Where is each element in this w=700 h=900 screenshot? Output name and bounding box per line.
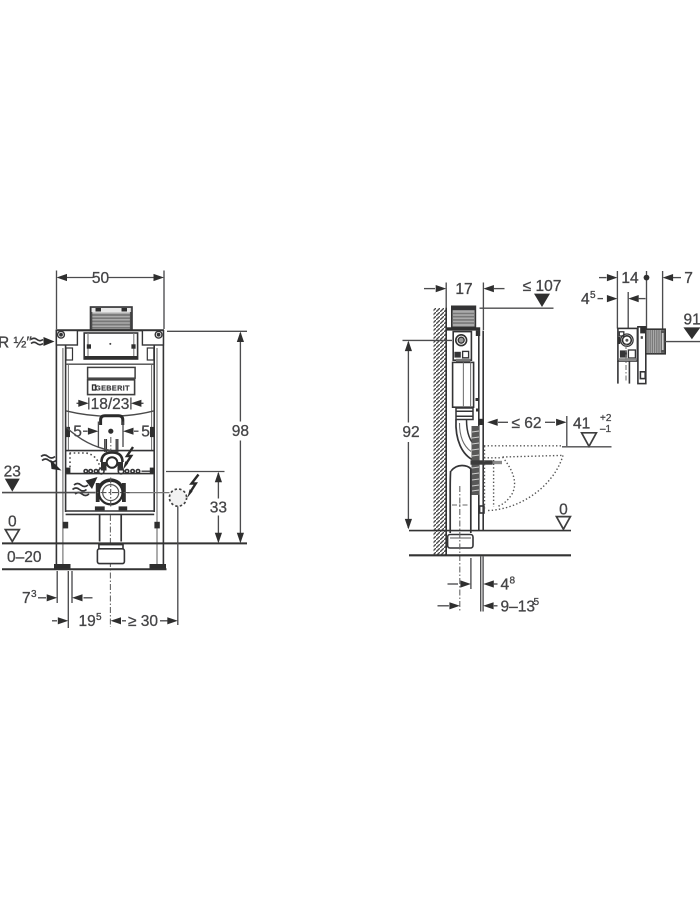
svg-text:7: 7 (22, 590, 31, 607)
svg-text:≤ 62: ≤ 62 (511, 415, 541, 432)
svg-text:GEBERIT: GEBERIT (95, 384, 130, 393)
svg-text:+2: +2 (600, 413, 612, 424)
svg-text:0: 0 (8, 514, 17, 531)
svg-text:50: 50 (92, 270, 110, 287)
svg-text:5: 5 (141, 424, 150, 441)
svg-text:≤ 107: ≤ 107 (523, 278, 562, 295)
svg-text:≥ 30: ≥ 30 (128, 613, 158, 630)
svg-text:4: 4 (501, 577, 510, 594)
svg-text:4: 4 (581, 291, 590, 308)
svg-text:19: 19 (79, 613, 96, 630)
svg-text:98: 98 (232, 423, 249, 440)
svg-text:7: 7 (684, 270, 693, 287)
svg-text:5: 5 (96, 612, 102, 623)
svg-text:33: 33 (210, 500, 227, 517)
svg-text:0–20: 0–20 (7, 549, 42, 566)
svg-text:9–13: 9–13 (501, 598, 535, 615)
svg-text:18/23: 18/23 (91, 396, 130, 413)
svg-text:91: 91 (684, 312, 700, 329)
svg-text:8: 8 (510, 576, 516, 587)
svg-text:14: 14 (621, 270, 639, 287)
svg-text:5: 5 (534, 597, 540, 608)
svg-text:5: 5 (590, 290, 596, 301)
svg-text:–1: –1 (600, 424, 612, 435)
svg-text:23: 23 (4, 464, 21, 481)
svg-text:92: 92 (402, 424, 419, 441)
svg-text:3: 3 (31, 589, 37, 600)
svg-text:41: 41 (573, 415, 590, 432)
svg-text:R ½″: R ½″ (0, 335, 32, 352)
svg-text:17: 17 (455, 281, 472, 298)
